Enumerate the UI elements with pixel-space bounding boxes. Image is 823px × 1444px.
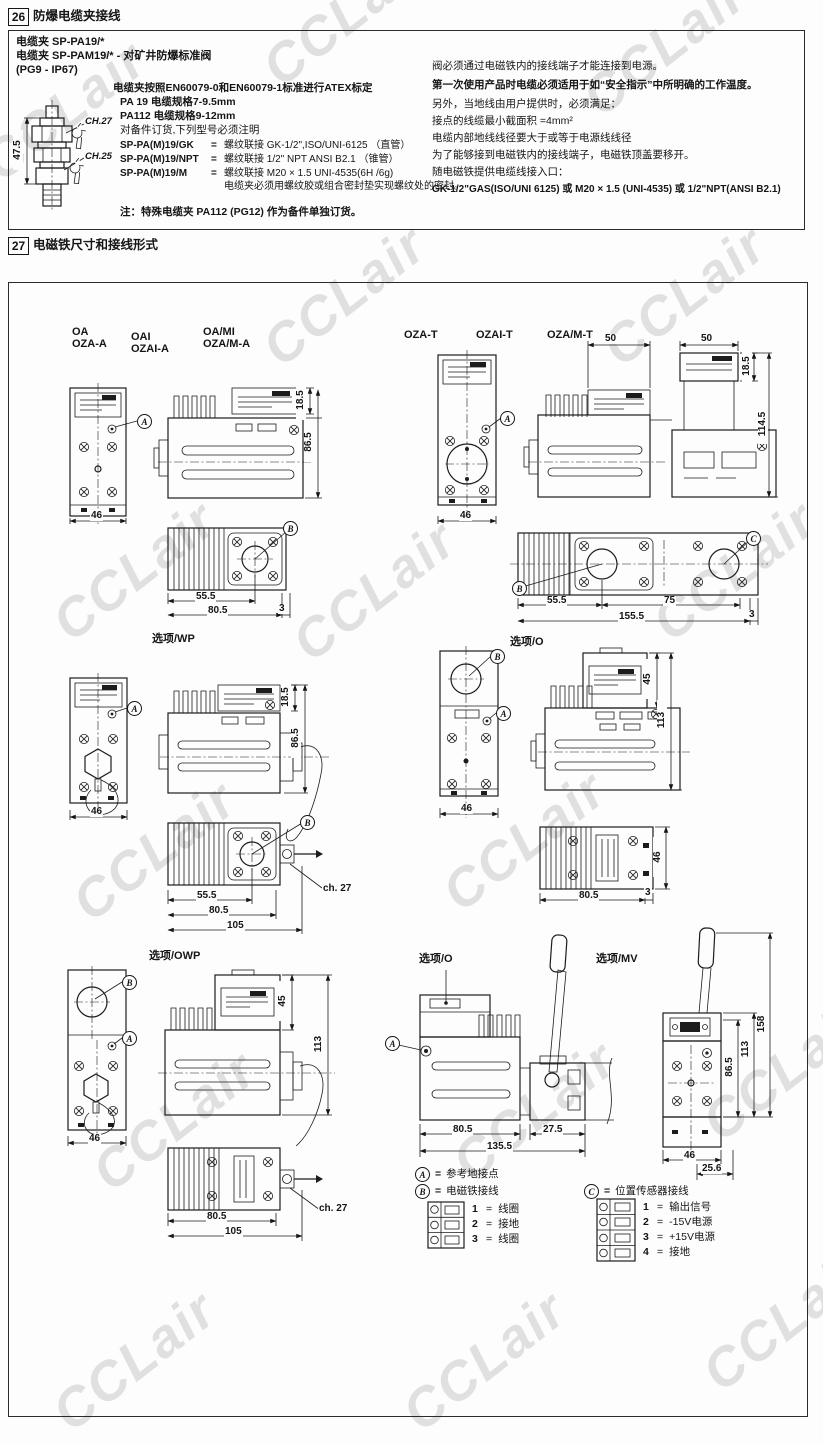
section-27-title: 电磁铁尺寸和接线形式	[33, 238, 158, 254]
dim-width: 55.5	[546, 596, 567, 606]
model-desc: 螺纹联接 M20 × 1.5 UNI-4535(6H /6g)	[224, 168, 393, 181]
dim-width: 75	[663, 596, 676, 606]
dim-width: 80.5	[207, 606, 228, 616]
model-code: SP-PA(M)19/M	[120, 168, 187, 181]
seal-note: 电缆夹必须用螺纹胶或组合密封垫实现螺纹处的密封。	[224, 181, 464, 194]
equals-sign: =	[486, 1218, 492, 1231]
dim-height: 113	[657, 700, 667, 740]
option-label-o: 选项/O	[419, 953, 453, 967]
callout-b: B	[283, 521, 298, 536]
equals-sign: =	[211, 140, 217, 153]
fv-wp-front	[70, 673, 127, 820]
dim-height: 86.5	[725, 1047, 735, 1087]
callout-a: A	[500, 411, 515, 426]
dim-height: 45	[643, 659, 653, 699]
pin-function: +15V电源	[669, 1231, 715, 1244]
pin-row: 3 = +15V电源	[643, 1231, 715, 1244]
callout-a: A	[385, 1036, 400, 1051]
dim-height: 46	[653, 837, 663, 877]
pin-number: 3	[472, 1233, 480, 1246]
wiring-note-line: GK-1/2"GAS(ISO/UNI 6125) 或 M20 × 1.5 (UN…	[432, 184, 781, 197]
pin-function: -15V电源	[669, 1216, 712, 1229]
wiring-note-line: 为了能够接到电磁铁内的接线端子，电磁铁顶盖要移开。	[432, 149, 695, 162]
legend-b-text: 电磁铁接线	[446, 1185, 499, 1198]
callout-b: B	[122, 975, 137, 990]
dim-height: 114.5	[758, 404, 768, 444]
dim-width: 46	[460, 804, 473, 814]
dim-width: 3	[644, 888, 652, 898]
model-desc: 螺纹联接 1/2" NPT ANSI B2.1 （锥管）	[224, 154, 399, 167]
dim-height: 45	[278, 981, 288, 1021]
callout-a: A	[137, 414, 152, 429]
dim-height: 86.5	[304, 422, 314, 462]
clamp-model-line: 电缆夹 SP-PA19/*	[16, 36, 104, 50]
legend-a-text: 参考地接点	[446, 1168, 499, 1181]
equals-sign: =	[657, 1201, 663, 1214]
variant-label: OZAI-T	[476, 329, 513, 343]
pin-function: 线圈	[498, 1233, 519, 1246]
dim-width: 55.5	[195, 592, 216, 602]
section-26-title: 防爆电缆夹接线	[33, 9, 121, 25]
legend-c-row: C = 位置传感器接线	[584, 1184, 689, 1199]
dim-width: 135.5	[486, 1142, 513, 1152]
model-code: SP-PA(M)19/NPT	[120, 154, 199, 167]
equals-sign: =	[604, 1185, 610, 1198]
clamp-model-line: (PG9 - IP67)	[16, 64, 78, 78]
variant-label: OZA/M-A	[203, 338, 250, 352]
dim-width: 46	[459, 511, 472, 521]
dim-width: 50	[700, 334, 713, 344]
spec-line: PA112 电缆规格9-12mm	[120, 110, 235, 123]
dim-height: 113	[314, 1024, 324, 1064]
equals-sign: =	[486, 1203, 492, 1216]
sv-o-mv-side	[394, 935, 614, 1157]
equals-sign: =	[657, 1246, 663, 1259]
model-code: SP-PA(M)19/GK	[120, 140, 194, 153]
callout-b: B	[512, 581, 527, 596]
legend-a-row: A = 参考地接点	[415, 1167, 499, 1182]
legend-b-row: B = 电磁铁接线	[415, 1184, 499, 1199]
equals-sign: =	[435, 1168, 441, 1181]
pin-row: 3 = 线圈	[472, 1233, 519, 1246]
variant-label: OZA-A	[72, 338, 107, 352]
pin-function: 输出信号	[669, 1201, 711, 1214]
callout-a: A	[122, 1031, 137, 1046]
sv-ozat-side	[524, 341, 778, 497]
dim-width: 105	[224, 1227, 243, 1237]
callout-a: A	[127, 701, 142, 716]
wiring-note-line: 第一次使用产品时电缆必须适用于如“安全指示”中所明确的工作温度。	[432, 79, 758, 92]
dim-width: 80.5	[208, 906, 229, 916]
dim-width: 3	[278, 604, 286, 614]
pin-row: 1 = 输出信号	[643, 1201, 711, 1214]
equals-sign: =	[435, 1185, 441, 1198]
connector-b-drawing	[428, 1202, 464, 1248]
option-label-owp: 选项/OWP	[149, 950, 200, 964]
clamp-model-line: 电缆夹 SP-PAM19/* - 对矿井防爆标准阀	[16, 50, 211, 64]
dim-height: 18.5	[742, 346, 752, 386]
wiring-note-line: 另外，当地线由用户提供时，必须满足：	[432, 98, 621, 111]
dim-wrench-size: ch. 27	[322, 884, 352, 894]
dim-width: 155.5	[618, 612, 645, 622]
legend-c-text: 位置传感器接线	[615, 1185, 689, 1198]
callout-b: B	[490, 649, 505, 664]
option-label-wp: 选项/WP	[152, 633, 195, 647]
fv-ozat-front	[438, 350, 501, 524]
section-26-number: 26	[8, 8, 29, 26]
equals-sign: =	[211, 154, 217, 167]
spec-line: 对备件订货,下列型号必须注明	[120, 124, 259, 137]
callout-a: A	[496, 706, 511, 721]
dim-width: 80.5	[452, 1125, 473, 1135]
pin-row: 4 = 接地	[643, 1246, 690, 1259]
variant-label: OZAI-A	[131, 343, 169, 357]
pin-number: 3	[643, 1231, 651, 1244]
sv-owp-side	[158, 970, 335, 1146]
fv-o-front	[440, 646, 498, 818]
equals-sign: =	[657, 1231, 663, 1244]
spec-line: 电缆夹按照EN60079-0和EN60079-1标准进行ATEX标定	[113, 82, 372, 95]
cable-clamp-drawing	[24, 100, 91, 212]
spec-line: PA 19 电缆规格7-9.5mm	[120, 96, 236, 109]
fv-owp-front	[68, 966, 126, 1146]
dim-width: 46	[88, 1134, 101, 1144]
pin-number: 1	[472, 1203, 480, 1216]
option-label-o: 选项/O	[510, 636, 544, 650]
dim-height: 113	[741, 1029, 751, 1069]
dim-width: 46	[90, 511, 103, 521]
clamp-height-dim: 47.5	[13, 130, 23, 170]
pin-function: 线圈	[498, 1203, 519, 1216]
model-desc: 螺纹联接 GK-1/2",ISO/UNI-6125 （直管）	[224, 140, 410, 153]
bv-wp-bottom	[168, 823, 323, 934]
pin-function: 接地	[669, 1246, 690, 1259]
dim-width: 80.5	[578, 891, 599, 901]
pin-row: 2 = -15V电源	[643, 1216, 712, 1229]
pin-number: 1	[643, 1201, 651, 1214]
variant-label: OZA-T	[404, 329, 438, 343]
fv-oa-front	[70, 383, 137, 524]
dim-width: 105	[226, 921, 245, 931]
option-label-mv: 选项/MV	[596, 953, 638, 967]
connector-c-drawing	[597, 1199, 635, 1261]
wiring-note-line: 电缆内部地线线径要大于或等于电源线线径	[432, 132, 632, 145]
callout-a: A	[415, 1167, 430, 1182]
equals-sign: =	[657, 1216, 663, 1229]
pin-row: 2 = 接地	[472, 1218, 519, 1231]
clamp-ch27-label: CH.27	[85, 116, 112, 128]
pin-row: 1 = 线圈	[472, 1203, 519, 1216]
dim-width: 55.5	[196, 891, 217, 901]
wiring-note-line: 阀必须通过电磁铁内的接线端子才能连接到电源。	[432, 60, 663, 73]
dim-width: 46	[683, 1151, 696, 1161]
fv-mv-front	[663, 928, 773, 1180]
dim-wrench-size: ch. 27	[318, 1204, 348, 1214]
callout-c: C	[746, 531, 761, 546]
equals-sign: =	[486, 1233, 492, 1246]
spare-part-note: 注：特殊电缆夹 PA112 (PG12) 作为备件单独订货。	[120, 206, 361, 219]
dim-width: 3	[748, 610, 756, 620]
dim-height: 18.5	[281, 677, 291, 717]
dim-width: 25.6	[701, 1164, 722, 1174]
dim-width: 27.5	[542, 1125, 563, 1135]
bv-owp-bottom	[168, 1148, 323, 1241]
dim-width: 50	[604, 334, 617, 344]
dim-height: 86.5	[291, 718, 301, 758]
clamp-ch25-label: CH.25	[85, 151, 112, 163]
pin-number: 2	[643, 1216, 651, 1229]
callout-b: B	[415, 1184, 430, 1199]
dim-height: 18.5	[296, 380, 306, 420]
wiring-note-line: 随电磁铁提供电缆线接入口：	[432, 166, 569, 179]
dim-width: 46	[90, 807, 103, 817]
equals-sign: =	[211, 168, 217, 181]
callout-b: B	[300, 815, 315, 830]
section-27-number: 27	[8, 237, 29, 255]
pin-number: 4	[643, 1246, 651, 1259]
callout-c: C	[584, 1184, 599, 1199]
dim-width: 80.5	[206, 1212, 227, 1222]
pin-number: 2	[472, 1218, 480, 1231]
bv-oa-bottom	[168, 528, 290, 618]
wiring-note-line: 接点的线缆最小截面积 =4mm²	[432, 115, 573, 128]
pin-function: 接地	[498, 1218, 519, 1231]
datasheet-page: { "watermark": {"text": "CCLair"}, "head…	[0, 0, 823, 1425]
variant-label: OZA/M-T	[547, 329, 593, 343]
dim-height: 158	[757, 1004, 767, 1044]
